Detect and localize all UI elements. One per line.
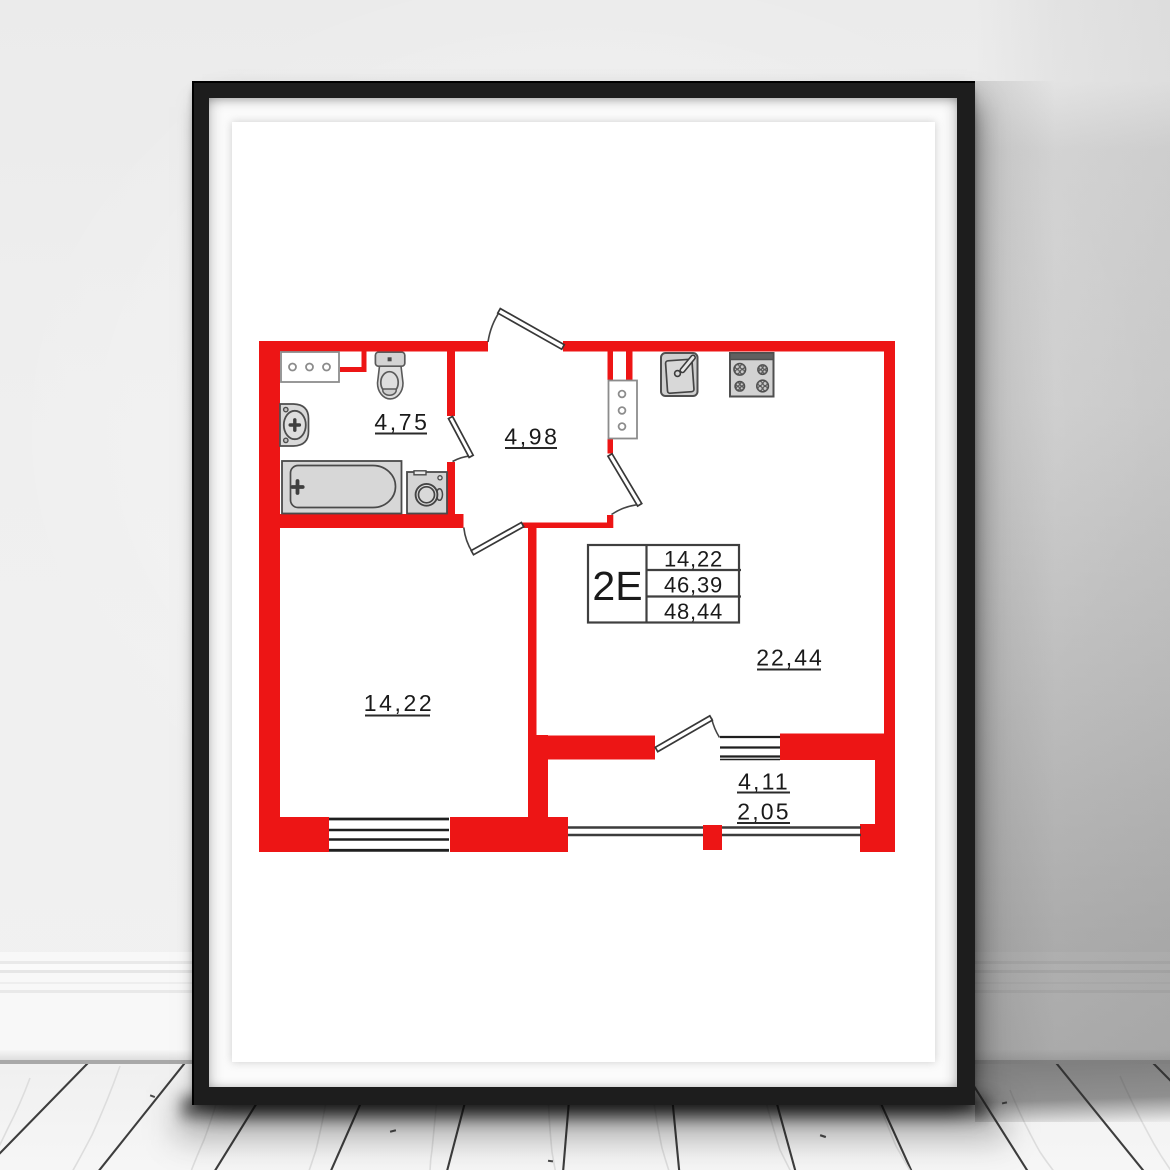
svg-text:4,11: 4,11 (738, 769, 790, 795)
svg-text:48,44: 48,44 (664, 599, 723, 624)
svg-text:22,44: 22,44 (756, 645, 824, 671)
svg-text:14,22: 14,22 (664, 547, 723, 572)
svg-text:2E: 2E (592, 563, 642, 609)
svg-text:4,75: 4,75 (374, 409, 429, 435)
svg-text:46,39: 46,39 (664, 573, 723, 598)
svg-text:14,22: 14,22 (364, 690, 435, 716)
svg-text:2,05: 2,05 (737, 799, 791, 825)
svg-text:4,98: 4,98 (504, 424, 559, 450)
